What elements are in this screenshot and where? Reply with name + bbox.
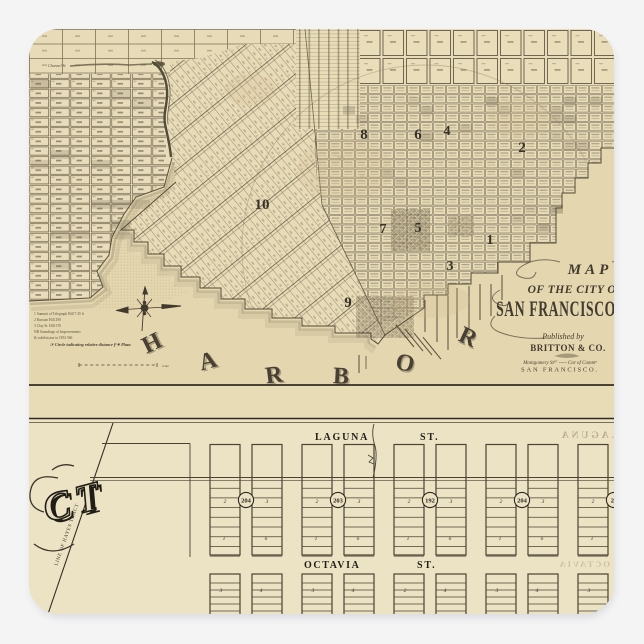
svg-text:4: 4 <box>536 587 539 594</box>
svg-text:4: 4 <box>260 587 263 594</box>
svg-text:LAGUNA: LAGUNA <box>559 431 618 441</box>
svg-text:2: 2 <box>404 588 407 594</box>
svg-text:LAGUNA: LAGUNA <box>315 432 369 443</box>
svg-text:3: 3 <box>449 499 453 505</box>
svg-text:203: 203 <box>333 497 344 504</box>
svg-text:2: 2 <box>500 499 503 505</box>
svg-text:6: 6 <box>449 536 452 542</box>
svg-text:3: 3 <box>587 588 591 594</box>
svg-text:6: 6 <box>541 536 544 542</box>
svg-text:3: 3 <box>495 588 499 594</box>
svg-text:2: 2 <box>224 499 227 505</box>
svg-text:204: 204 <box>517 497 528 504</box>
svg-text:ST.: ST. <box>420 432 439 443</box>
svg-text:6: 6 <box>265 536 268 542</box>
svg-text:1: 1 <box>407 536 410 542</box>
svg-text:6: 6 <box>357 536 360 542</box>
svg-text:2: 2 <box>408 499 411 505</box>
svg-text:OCTAVIA: OCTAVIA <box>558 559 610 569</box>
svg-text:3: 3 <box>357 499 361 505</box>
svg-text:1: 1 <box>499 536 502 542</box>
svg-text:4: 4 <box>444 587 447 594</box>
svg-text:204: 204 <box>241 497 252 504</box>
svg-text:3: 3 <box>541 499 545 505</box>
svg-text:3: 3 <box>265 499 269 505</box>
svg-text:4: 4 <box>352 587 355 594</box>
svg-text:ST.: ST. <box>417 560 436 571</box>
svg-text:2: 2 <box>592 499 595 505</box>
svg-text:1: 1 <box>223 536 226 542</box>
svg-text:192: 192 <box>425 497 435 504</box>
svg-text:2: 2 <box>316 499 319 505</box>
svg-text:3: 3 <box>219 588 223 594</box>
svg-text:OCTAVIA: OCTAVIA <box>304 560 360 571</box>
svg-text:1: 1 <box>591 536 594 542</box>
svg-text:1: 1 <box>315 536 318 542</box>
svg-text:3: 3 <box>311 588 315 594</box>
